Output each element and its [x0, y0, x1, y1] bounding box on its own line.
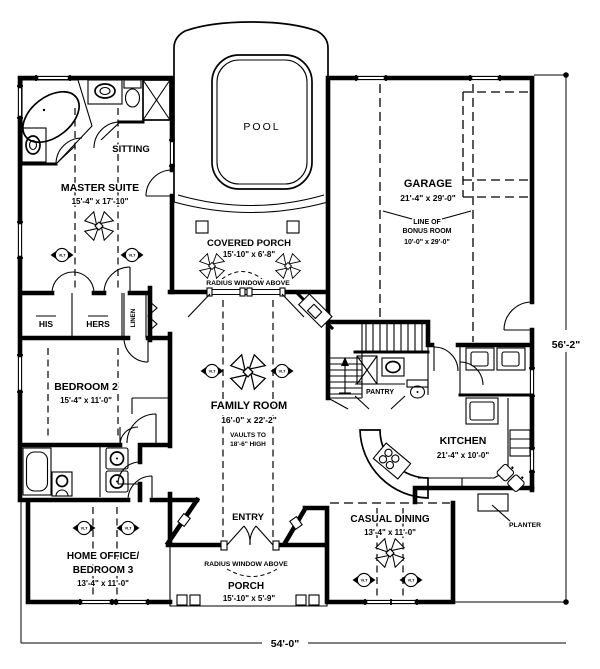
dryer-icon — [497, 348, 525, 370]
door-arc — [146, 170, 172, 196]
door-arc — [56, 138, 82, 164]
family-room: FAMILY ROOM 16'-0" x 22'-2" VAULTS TO 18… — [201, 294, 332, 542]
vault-light-icon — [51, 248, 74, 261]
column — [190, 595, 200, 605]
bathroom-2 — [23, 427, 140, 496]
vault-light-icon — [271, 364, 294, 377]
window — [80, 599, 112, 605]
door-arc — [120, 427, 138, 445]
hers-closet-label: HERS — [86, 319, 110, 329]
stair-treads — [366, 324, 422, 352]
porch: RADIUS WINDOW ABOVE PORCH 15'-10" x 5'-9… — [170, 545, 327, 606]
door-arc — [124, 338, 148, 362]
closets: HIS HERS LINEN — [36, 267, 157, 332]
stool — [56, 490, 68, 496]
radius-window-note: RADIUS WINDOW ABOVE — [206, 280, 290, 287]
floor-plan: VLT POOL — [0, 0, 600, 669]
walls-left-wing — [20, 78, 532, 602]
sink-icon — [26, 136, 40, 154]
garage-label: GARAGE — [404, 178, 452, 190]
overall-height-dim: 56'-2" — [552, 339, 581, 351]
window — [17, 355, 23, 392]
door-arc — [434, 347, 458, 371]
vault-light-icon — [117, 521, 140, 534]
ceiling-fan-icon — [376, 539, 405, 568]
ceiling-fan-icon — [85, 212, 114, 241]
sitting-label: SITTING — [112, 144, 149, 155]
vault-light-icon — [73, 521, 96, 534]
pool-deck: POOL — [174, 22, 328, 213]
sink-icon — [57, 476, 68, 487]
window — [356, 75, 386, 81]
walls-interior — [20, 122, 532, 395]
window — [169, 140, 175, 166]
leader-line — [442, 211, 471, 219]
deck-edge-lower — [174, 202, 328, 213]
pool-label: POOL — [243, 121, 280, 133]
vault-light-icon — [353, 573, 376, 586]
bonus-room-dims: 10'-0" x 29'-0" — [404, 239, 450, 246]
casual-dining-dims: 13'-4" x 11'-0" — [364, 528, 416, 537]
garage-dims: 21'-4" x 29'-0" — [400, 193, 456, 203]
window — [529, 368, 535, 396]
vault-light-icon — [400, 573, 423, 586]
sink-icon — [386, 362, 400, 373]
covered-porch: COVERED PORCH 15'-10" x 6'-8" RADIUS WIN… — [188, 221, 304, 317]
bonus-room-label1: LINE OF — [413, 219, 441, 226]
column — [196, 221, 208, 233]
closet-door-arc — [127, 398, 168, 443]
casual-dining: CASUAL DINING 13'-4" x 11'-0" — [330, 503, 450, 598]
vault-light-icon — [201, 364, 224, 377]
washer-icon — [466, 348, 494, 370]
casual-dining-label: CASUAL DINING — [350, 514, 429, 525]
his-closet-label: HIS — [39, 319, 54, 329]
column — [296, 595, 306, 605]
window — [116, 599, 148, 605]
entry: ENTRY — [221, 512, 279, 550]
family-room-label: FAMILY ROOM — [211, 400, 287, 412]
toilet-icon — [126, 89, 140, 107]
front-door — [221, 526, 279, 550]
door-arc — [104, 267, 130, 293]
kitchen: KITCHEN 21'-4" x 10'-0" — [360, 398, 530, 498]
bonus-room-label2: BONUS ROOM — [403, 228, 452, 235]
laundry — [434, 347, 525, 385]
window — [17, 222, 23, 258]
double-door-arcs — [52, 272, 94, 293]
bathtub-icon — [23, 448, 51, 495]
floor-plan-canvas: VLT POOL — [0, 0, 600, 669]
bedroom2-label: BEDROOM 2 — [54, 381, 118, 393]
column — [287, 221, 299, 233]
home-office-label1: HOME OFFICE/ — [67, 551, 139, 562]
home-office-dims: 13'-4" x 11'-0" — [77, 579, 129, 588]
garage: GARAGE 21'-4" x 29'-0" LINE OF BONUS ROO… — [380, 84, 532, 342]
master-suite-label: MASTER SUITE — [61, 182, 139, 194]
window — [365, 599, 417, 605]
column — [309, 595, 319, 605]
radius-window-note: RADIUS WINDOW ABOVE — [204, 561, 288, 568]
leader-line — [383, 211, 412, 219]
overall-width-dim: 54'-0" — [271, 638, 300, 650]
radius-window-arc — [222, 272, 262, 280]
bedroom-2: BEDROOM 2 15'-4" x 11'-0" — [48, 338, 168, 443]
column — [177, 595, 187, 605]
radius-window-arc — [227, 569, 277, 577]
dimensions: 54'-0" 56'-2" — [21, 72, 580, 650]
covered-porch-dims: 15'-10" x 6'-8" — [223, 250, 276, 259]
sink-icon — [95, 84, 115, 98]
planter-box — [478, 494, 508, 511]
door-arc — [504, 302, 532, 330]
ceiling-fan-icon — [200, 254, 225, 279]
door-arc — [118, 462, 140, 484]
pantry-label: PANTRY — [366, 389, 394, 396]
porch-label: PORCH — [228, 581, 264, 592]
family-room-dims: 16'-0" x 22'-2" — [221, 415, 277, 425]
vault-light-icon — [121, 248, 144, 261]
entry-label: ENTRY — [232, 512, 265, 523]
master-suite-dims: 15'-4" x 17'-10" — [72, 197, 129, 206]
ceiling-fan-icon — [276, 254, 301, 279]
window — [470, 75, 500, 81]
bedroom2-dims: 15'-4" x 11'-0" — [60, 396, 112, 405]
ceiling-fan-icon — [231, 355, 266, 390]
family-room-note2: 18'-6" HIGH — [230, 441, 266, 448]
family-room-note1: VAULTS TO — [230, 432, 266, 439]
wall-oven-icon — [510, 430, 530, 456]
home-office-label2: BEDROOM 3 — [73, 565, 134, 576]
master-suite: SITTING MASTER SUITE 15'-4" x 17'-10" — [51, 108, 173, 290]
cooktop-icon — [373, 443, 410, 479]
kitchen-dims: 21'-4" x 10'-0" — [437, 451, 490, 460]
kitchen-label: KITCHEN — [440, 435, 487, 447]
covered-porch-label: COVERED PORCH — [207, 238, 291, 249]
planter: PLANTER — [478, 494, 541, 529]
deck-edge-upper — [178, 195, 324, 206]
linen-closet-label: LINEN — [130, 308, 137, 327]
planter-label: PLANTER — [509, 522, 541, 529]
toilet-tank — [124, 80, 141, 88]
porch-dims: 15'-10" x 5'-9" — [223, 594, 276, 603]
